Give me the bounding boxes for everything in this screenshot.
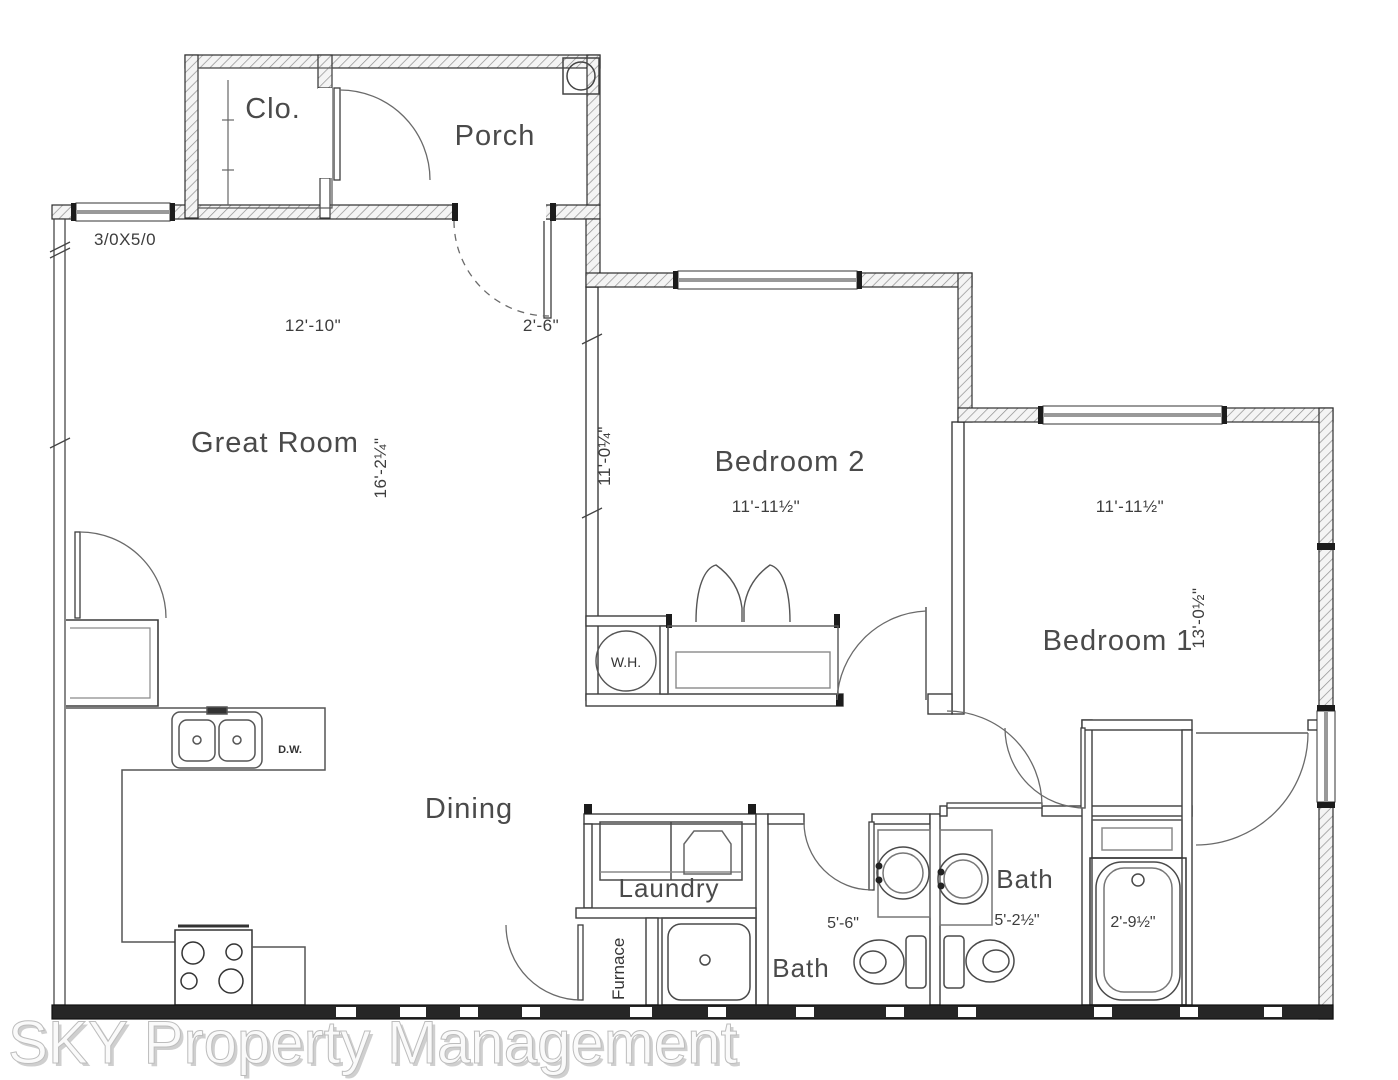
pantry-closet: [66, 620, 158, 706]
wall-whcloset-top: [586, 616, 670, 626]
water-heater-label: W.H.: [611, 654, 641, 670]
bath2-door-arc: [947, 711, 1042, 806]
wall-hall-dining: [586, 694, 843, 706]
front-door-arc: [454, 221, 549, 316]
doors: [75, 88, 1308, 1000]
room-label-bedroom2: Bedroom 2: [715, 446, 866, 478]
pantry-door-leaf: [75, 532, 80, 618]
room-label-great-room: Great Room: [191, 427, 359, 459]
dim-tub-width: 2'-9½": [1110, 914, 1155, 931]
window-great-room: [71, 203, 175, 221]
dim-great-room-depth: 16'-2¼": [371, 438, 390, 499]
closet-shelf: [676, 652, 830, 688]
wall-break-right: [1317, 543, 1335, 550]
refrigerator: [252, 947, 305, 1005]
pantry-door-arc: [80, 532, 166, 618]
laundry-appliances: [600, 822, 742, 880]
dim-bedroom2-depth: 11'-0¼": [595, 426, 614, 486]
watermark-text: SKY Property Management: [8, 1009, 738, 1076]
hall-door-leaf: [1081, 728, 1085, 808]
wall-closet-right-upper: [318, 55, 332, 88]
dim-bedroom1-depth: 13'-0½": [1189, 588, 1208, 649]
floor-plan-drawing: Porch Clo. Great Room 12'-10" 2'-6" 16'-…: [0, 0, 1398, 1080]
wall-closet-right-lower: [320, 178, 330, 218]
closet-door-opening: [318, 88, 332, 178]
room-label-laundry: Laundry: [619, 873, 720, 903]
window-bedroom2: [673, 271, 862, 289]
room-label-bedroom1: Bedroom 1: [1043, 625, 1194, 657]
closet-door-arc: [340, 90, 430, 180]
floor-plan-page: Porch Clo. Great Room 12'-10" 2'-6" 16'-…: [0, 0, 1398, 1080]
bath1-toilet: [854, 936, 926, 988]
wall-tub-right: [1182, 730, 1192, 1005]
wall-bath1-top-a: [768, 814, 804, 824]
bifold-door-right: [744, 565, 790, 622]
wall-porch-right: [587, 55, 600, 205]
room-label-bath1: Bath: [772, 953, 830, 983]
bath1-door-arc: [804, 822, 872, 890]
bath2-door-leaf: [947, 803, 1042, 808]
wall-left: [54, 219, 65, 1005]
wall-bedroom1-left: [952, 422, 964, 714]
dryer-door: [684, 831, 731, 874]
dim-front-door: 2'-6": [523, 316, 559, 335]
bedroom2-door-arc: [837, 611, 926, 700]
wall-furnace-shower: [646, 918, 658, 1005]
bedroom1-door-arc: [1196, 733, 1308, 845]
room-label-bath2: Bath: [996, 864, 1054, 894]
watermark: SKY Property Management SKY Property Man…: [8, 1009, 741, 1079]
bifold-door-left: [696, 565, 742, 622]
front-door-opening: [458, 203, 546, 221]
wall-porch-top: [185, 55, 600, 68]
wall-step2: [958, 273, 972, 422]
door-jambs: [584, 614, 843, 814]
bathtub: [1090, 858, 1186, 1005]
wall-bath2-top-a: [940, 806, 947, 816]
stove: [175, 926, 252, 1005]
wall-laundry-left: [584, 824, 592, 908]
wall-furnace-top: [576, 908, 756, 918]
window-bedroom1-side: [1317, 705, 1335, 808]
furnace-label: Furnace: [609, 938, 628, 1000]
wall-closet-divider: [660, 626, 668, 694]
wall-laundry-bath1: [756, 814, 768, 1005]
dim-bedroom1-width: 11'-11½": [1096, 497, 1164, 516]
dim-bath2-width: 5'-2½": [994, 912, 1039, 929]
window-size-label: 3/0X5/0: [94, 230, 156, 249]
wall-bath1-top-b: [872, 814, 930, 824]
closet-box: [668, 626, 838, 694]
room-label-porch: Porch: [455, 120, 536, 152]
room-label-closet: Clo.: [245, 93, 301, 125]
kitchen-sink: [172, 707, 262, 768]
bath2-vanity-sink: [938, 830, 993, 925]
dishwasher-label: D.W.: [278, 744, 302, 756]
wall-bath2-top-b: [1042, 806, 1192, 816]
bath1-door-leaf: [869, 822, 874, 890]
hall-door-arc: [1005, 728, 1085, 808]
furnace-door-leaf: [578, 925, 583, 1000]
wall-break-marks: [50, 242, 602, 518]
dim-bedroom2-width: 11'-11½": [732, 497, 800, 516]
closet-door-leaf: [334, 88, 340, 180]
bath1-vanity-sink: [876, 830, 931, 917]
dim-bath1-width: 5'-6": [827, 915, 859, 932]
wall-bedroom2-left: [586, 287, 598, 700]
wall-porch-left: [185, 55, 198, 218]
window-bedroom1: [1038, 406, 1227, 424]
linen-shelf: [1092, 820, 1182, 858]
porch-closet-interior: [198, 68, 332, 208]
front-door-leaf: [544, 219, 551, 318]
faucet-icon: [207, 707, 227, 714]
bedroom2-closets: [596, 565, 838, 694]
room-label-dining: Dining: [425, 793, 513, 825]
wall-bedroom1-lower: [1082, 720, 1192, 730]
wall-bath-divider: [930, 814, 940, 1005]
shower: [662, 918, 756, 1005]
furnace-door-arc: [506, 925, 581, 1000]
bath2-toilet: [944, 936, 1014, 988]
dim-great-room-width: 12'-10": [285, 316, 341, 335]
